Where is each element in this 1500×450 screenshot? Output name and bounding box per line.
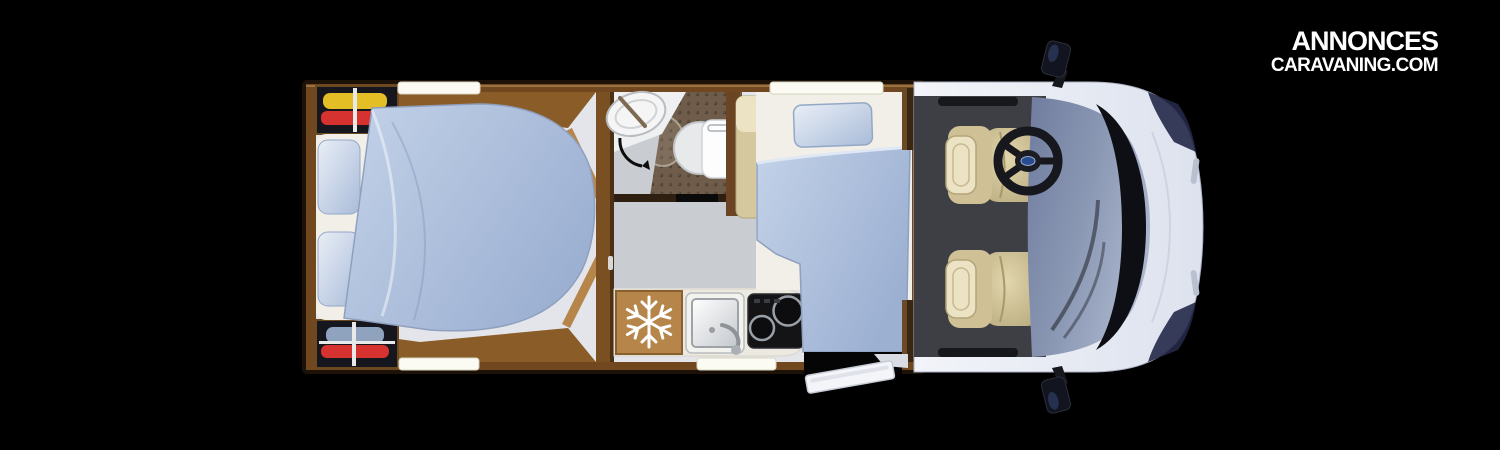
bedroom-window-top (398, 82, 480, 94)
kitchen-window-bottom (697, 358, 776, 370)
bathroom-wall-dark (676, 194, 718, 202)
kitchen-sink (686, 293, 744, 355)
floorplan-image: ANNONCES CARAVANING.COM (0, 0, 1500, 450)
sink-basin (692, 299, 738, 347)
stove-knob (764, 299, 770, 303)
brand-oval-badge (1021, 157, 1035, 166)
hanger-rail-cross (319, 341, 395, 344)
faucet-base (731, 345, 741, 355)
lounge-window-top (770, 82, 883, 94)
wall-post-edge (902, 300, 907, 362)
side-mirror-bottom (1040, 366, 1072, 414)
kitchen (614, 289, 806, 356)
sliding-door-handle (608, 256, 613, 270)
hanger-rail (353, 88, 357, 132)
stove (748, 294, 804, 348)
vehicle-front (914, 40, 1203, 415)
sink-drain (709, 327, 715, 333)
stove-knob (774, 299, 780, 303)
wardrobe-bottom (316, 320, 398, 368)
burner (750, 316, 774, 340)
wall-post-edge (902, 88, 907, 150)
passenger-seat (946, 250, 1042, 328)
pillow (793, 103, 872, 148)
living-module (302, 80, 926, 374)
side-mirror-top (1040, 40, 1072, 88)
island-double-bed (316, 104, 595, 331)
door-sill-top (938, 97, 1018, 106)
bedroom-window-bottom (399, 358, 479, 370)
logo-line2: CARAVANING.COM (1271, 56, 1438, 75)
pillow (318, 140, 360, 214)
door-sill-bottom (938, 348, 1018, 357)
bathroom (601, 85, 742, 202)
site-logo: ANNONCES CARAVANING.COM (1271, 28, 1438, 75)
logo-line1: ANNONCES (1271, 28, 1438, 55)
stove-knob (754, 299, 760, 303)
